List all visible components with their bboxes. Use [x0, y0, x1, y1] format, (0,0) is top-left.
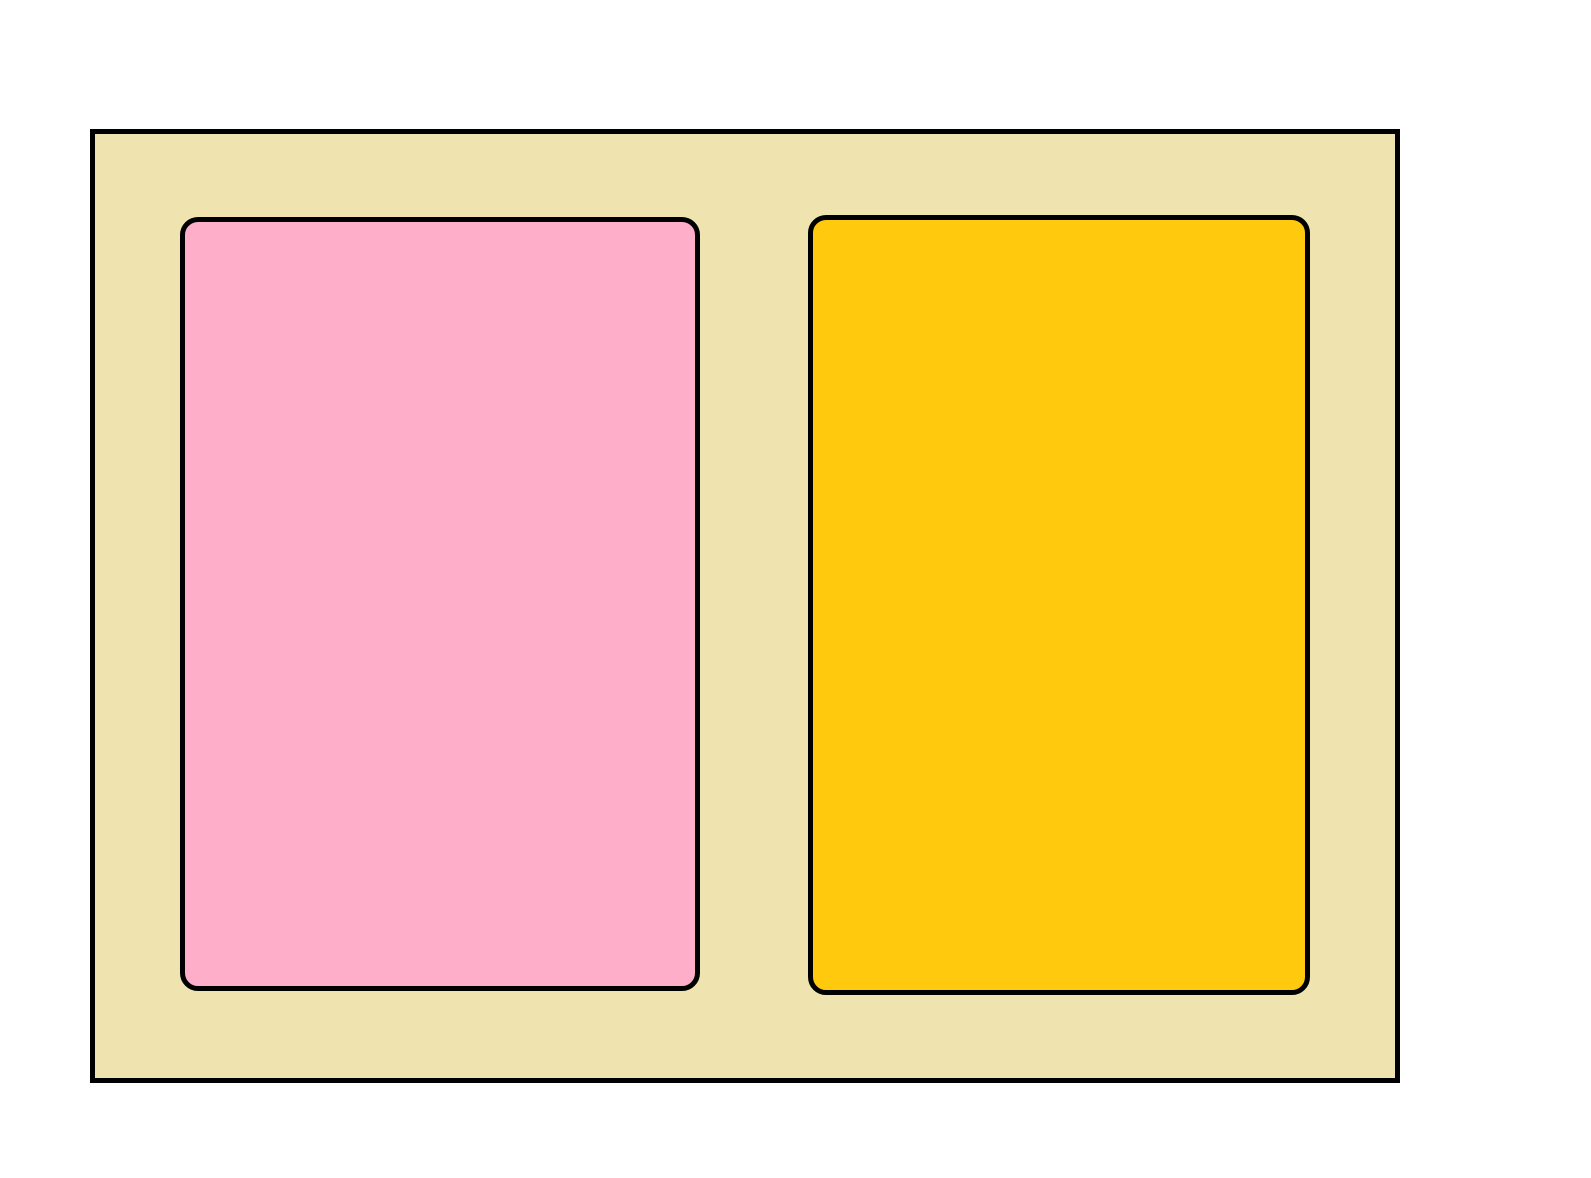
pink-rounded-rectangle — [180, 217, 700, 991]
yellow-rounded-rectangle — [808, 215, 1310, 995]
outer-panel — [90, 129, 1400, 1083]
drawing-canvas — [0, 0, 1591, 1178]
